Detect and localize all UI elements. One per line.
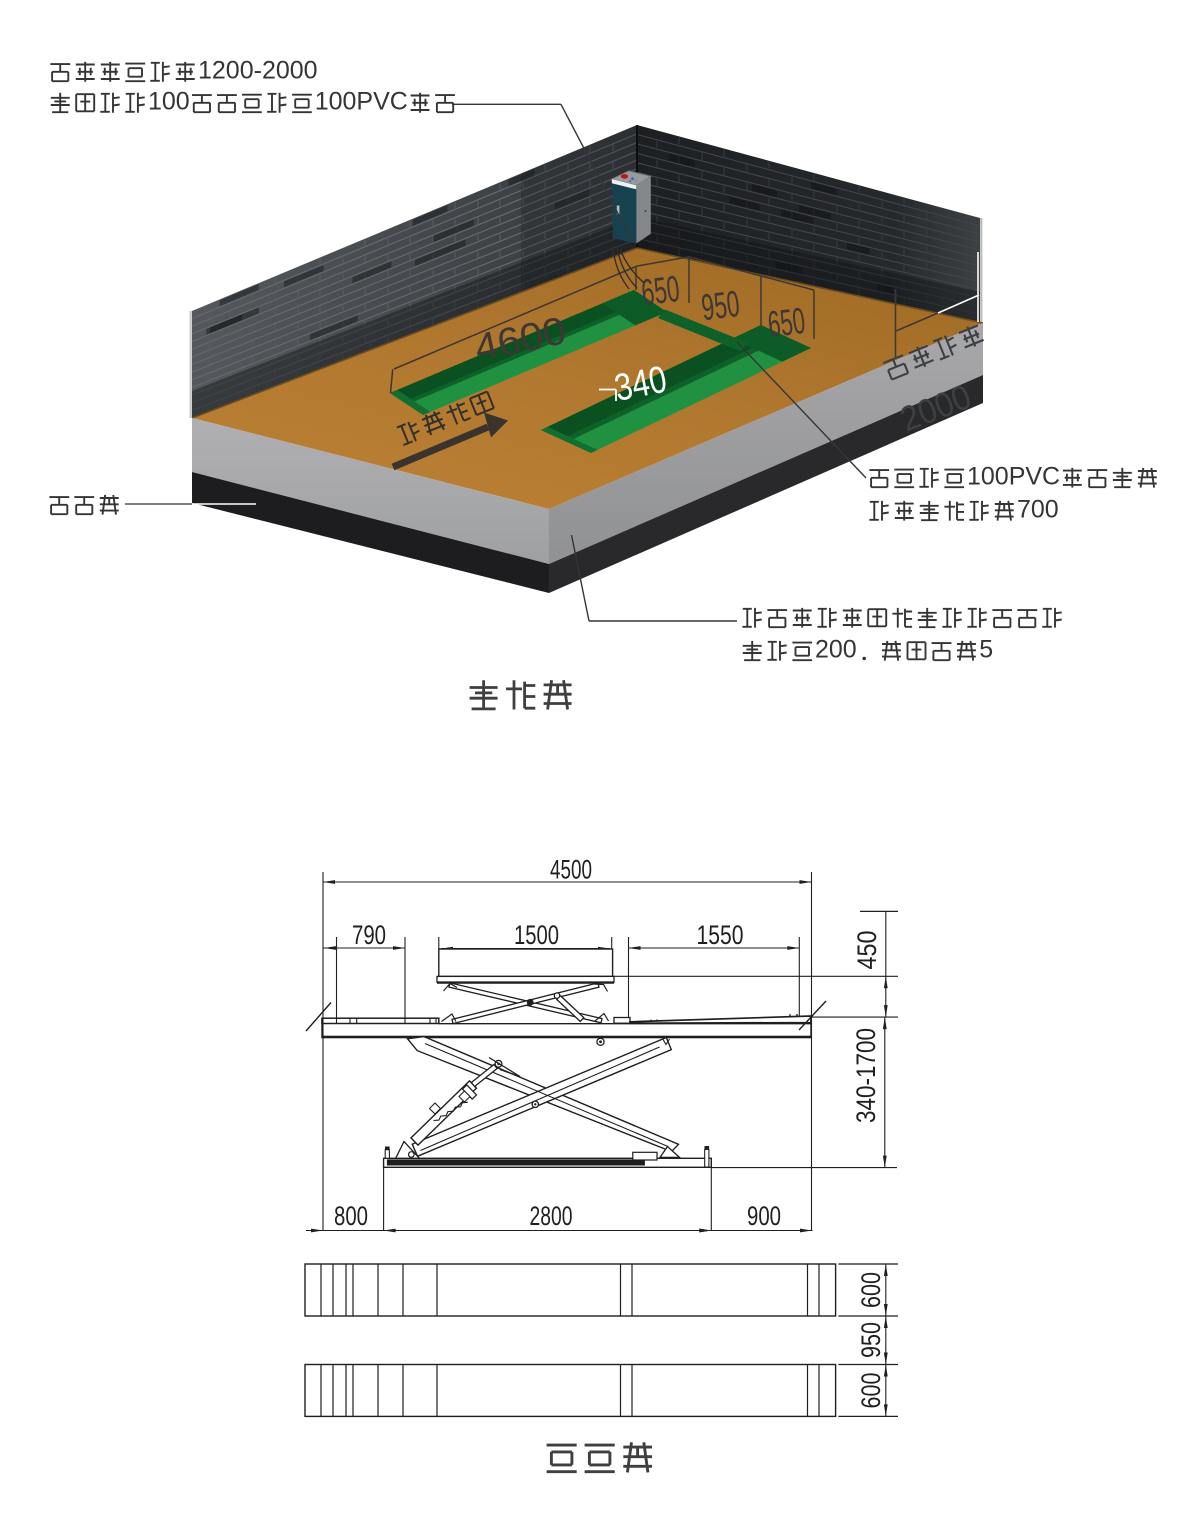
svg-text:600: 600 <box>856 1272 886 1308</box>
svg-text:340-1700: 340-1700 <box>851 1028 881 1123</box>
svg-text:790: 790 <box>352 920 386 950</box>
svg-text:1550: 1550 <box>697 920 744 950</box>
svg-text:1200-2000: 1200-2000 <box>198 57 318 85</box>
svg-text:700: 700 <box>1017 496 1059 524</box>
svg-text:650: 650 <box>639 268 682 313</box>
svg-text:450: 450 <box>852 931 882 970</box>
svg-text:650: 650 <box>766 300 808 345</box>
svg-text:1500: 1500 <box>514 920 559 950</box>
svg-text:100: 100 <box>148 88 190 116</box>
svg-text:900: 900 <box>747 1201 781 1231</box>
svg-text:5: 5 <box>979 636 993 664</box>
svg-text:100PVC: 100PVC <box>967 463 1060 491</box>
svg-text:100PVC: 100PVC <box>315 88 408 116</box>
svg-text:4500: 4500 <box>550 855 592 885</box>
svg-text:800: 800 <box>334 1201 368 1231</box>
svg-text:600: 600 <box>856 1373 886 1409</box>
svg-text:200: 200 <box>815 636 857 664</box>
svg-text:950: 950 <box>699 283 742 328</box>
svg-text:950: 950 <box>856 1322 886 1358</box>
svg-text:2800: 2800 <box>530 1201 573 1231</box>
